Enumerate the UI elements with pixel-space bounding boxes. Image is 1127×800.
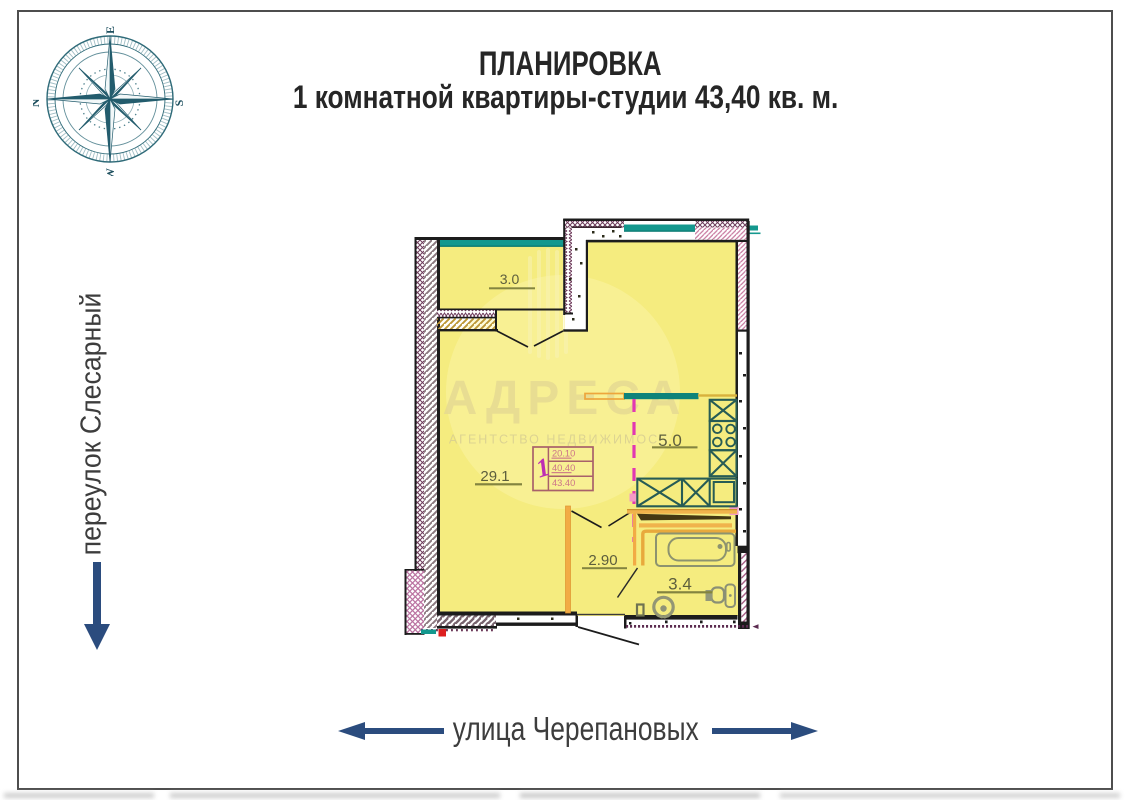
svg-text:43.40: 43.40	[552, 478, 575, 488]
svg-text:40.40: 40.40	[552, 463, 575, 473]
svg-text:S: S	[172, 99, 186, 106]
svg-text:N: N	[33, 98, 42, 107]
svg-text:W: W	[103, 168, 117, 176]
svg-text:20.10: 20.10	[552, 449, 575, 459]
svg-text:3.4: 3.4	[668, 575, 692, 594]
svg-text:E: E	[103, 26, 117, 34]
svg-text:3.0: 3.0	[500, 271, 520, 287]
svg-text:2.90: 2.90	[588, 552, 617, 569]
svg-text:29.1: 29.1	[480, 468, 509, 485]
svg-text:АГЕНТСТВО НЕДВИЖИМОС: АГЕНТСТВО НЕДВИЖИМОС	[449, 433, 659, 447]
